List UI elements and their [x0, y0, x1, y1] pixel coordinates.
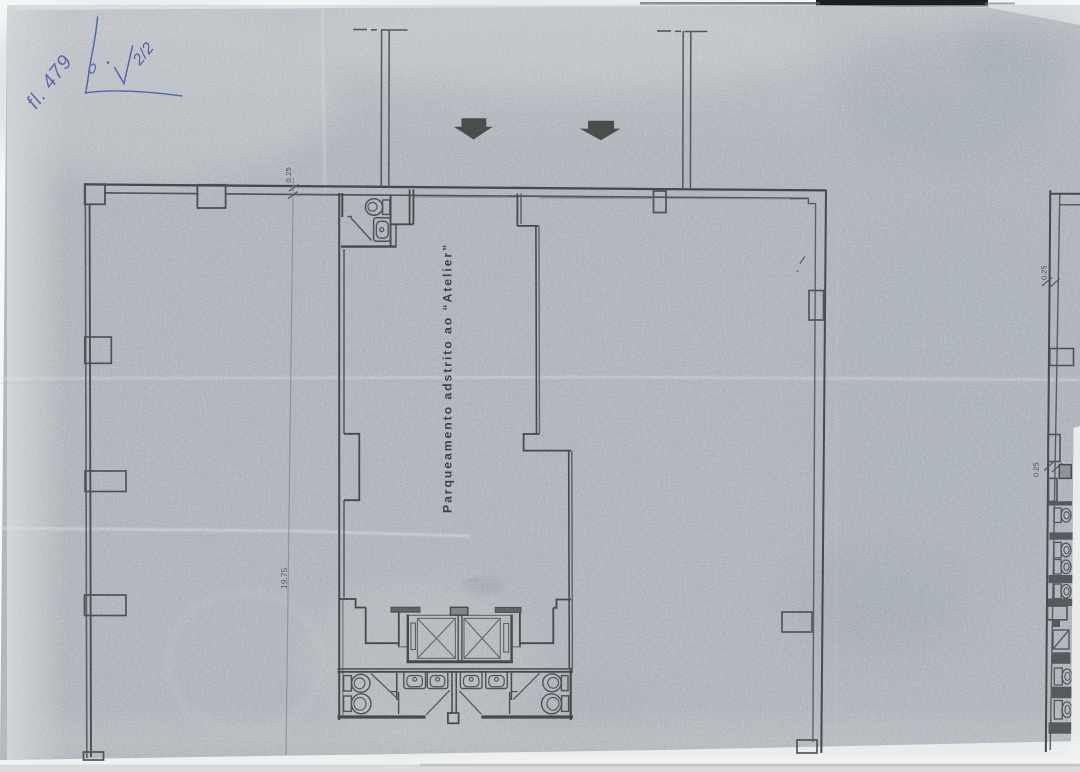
svg-text:0.25: 0.25	[1040, 265, 1049, 280]
svg-text:0.25: 0.25	[1032, 462, 1041, 477]
svg-text:0.25: 0.25	[284, 167, 293, 183]
svg-text:Parqueamento adstrito ao “At: Parqueamento adstrito ao “Atelier”	[441, 243, 455, 513]
svg-text:19.75: 19.75	[280, 567, 289, 589]
